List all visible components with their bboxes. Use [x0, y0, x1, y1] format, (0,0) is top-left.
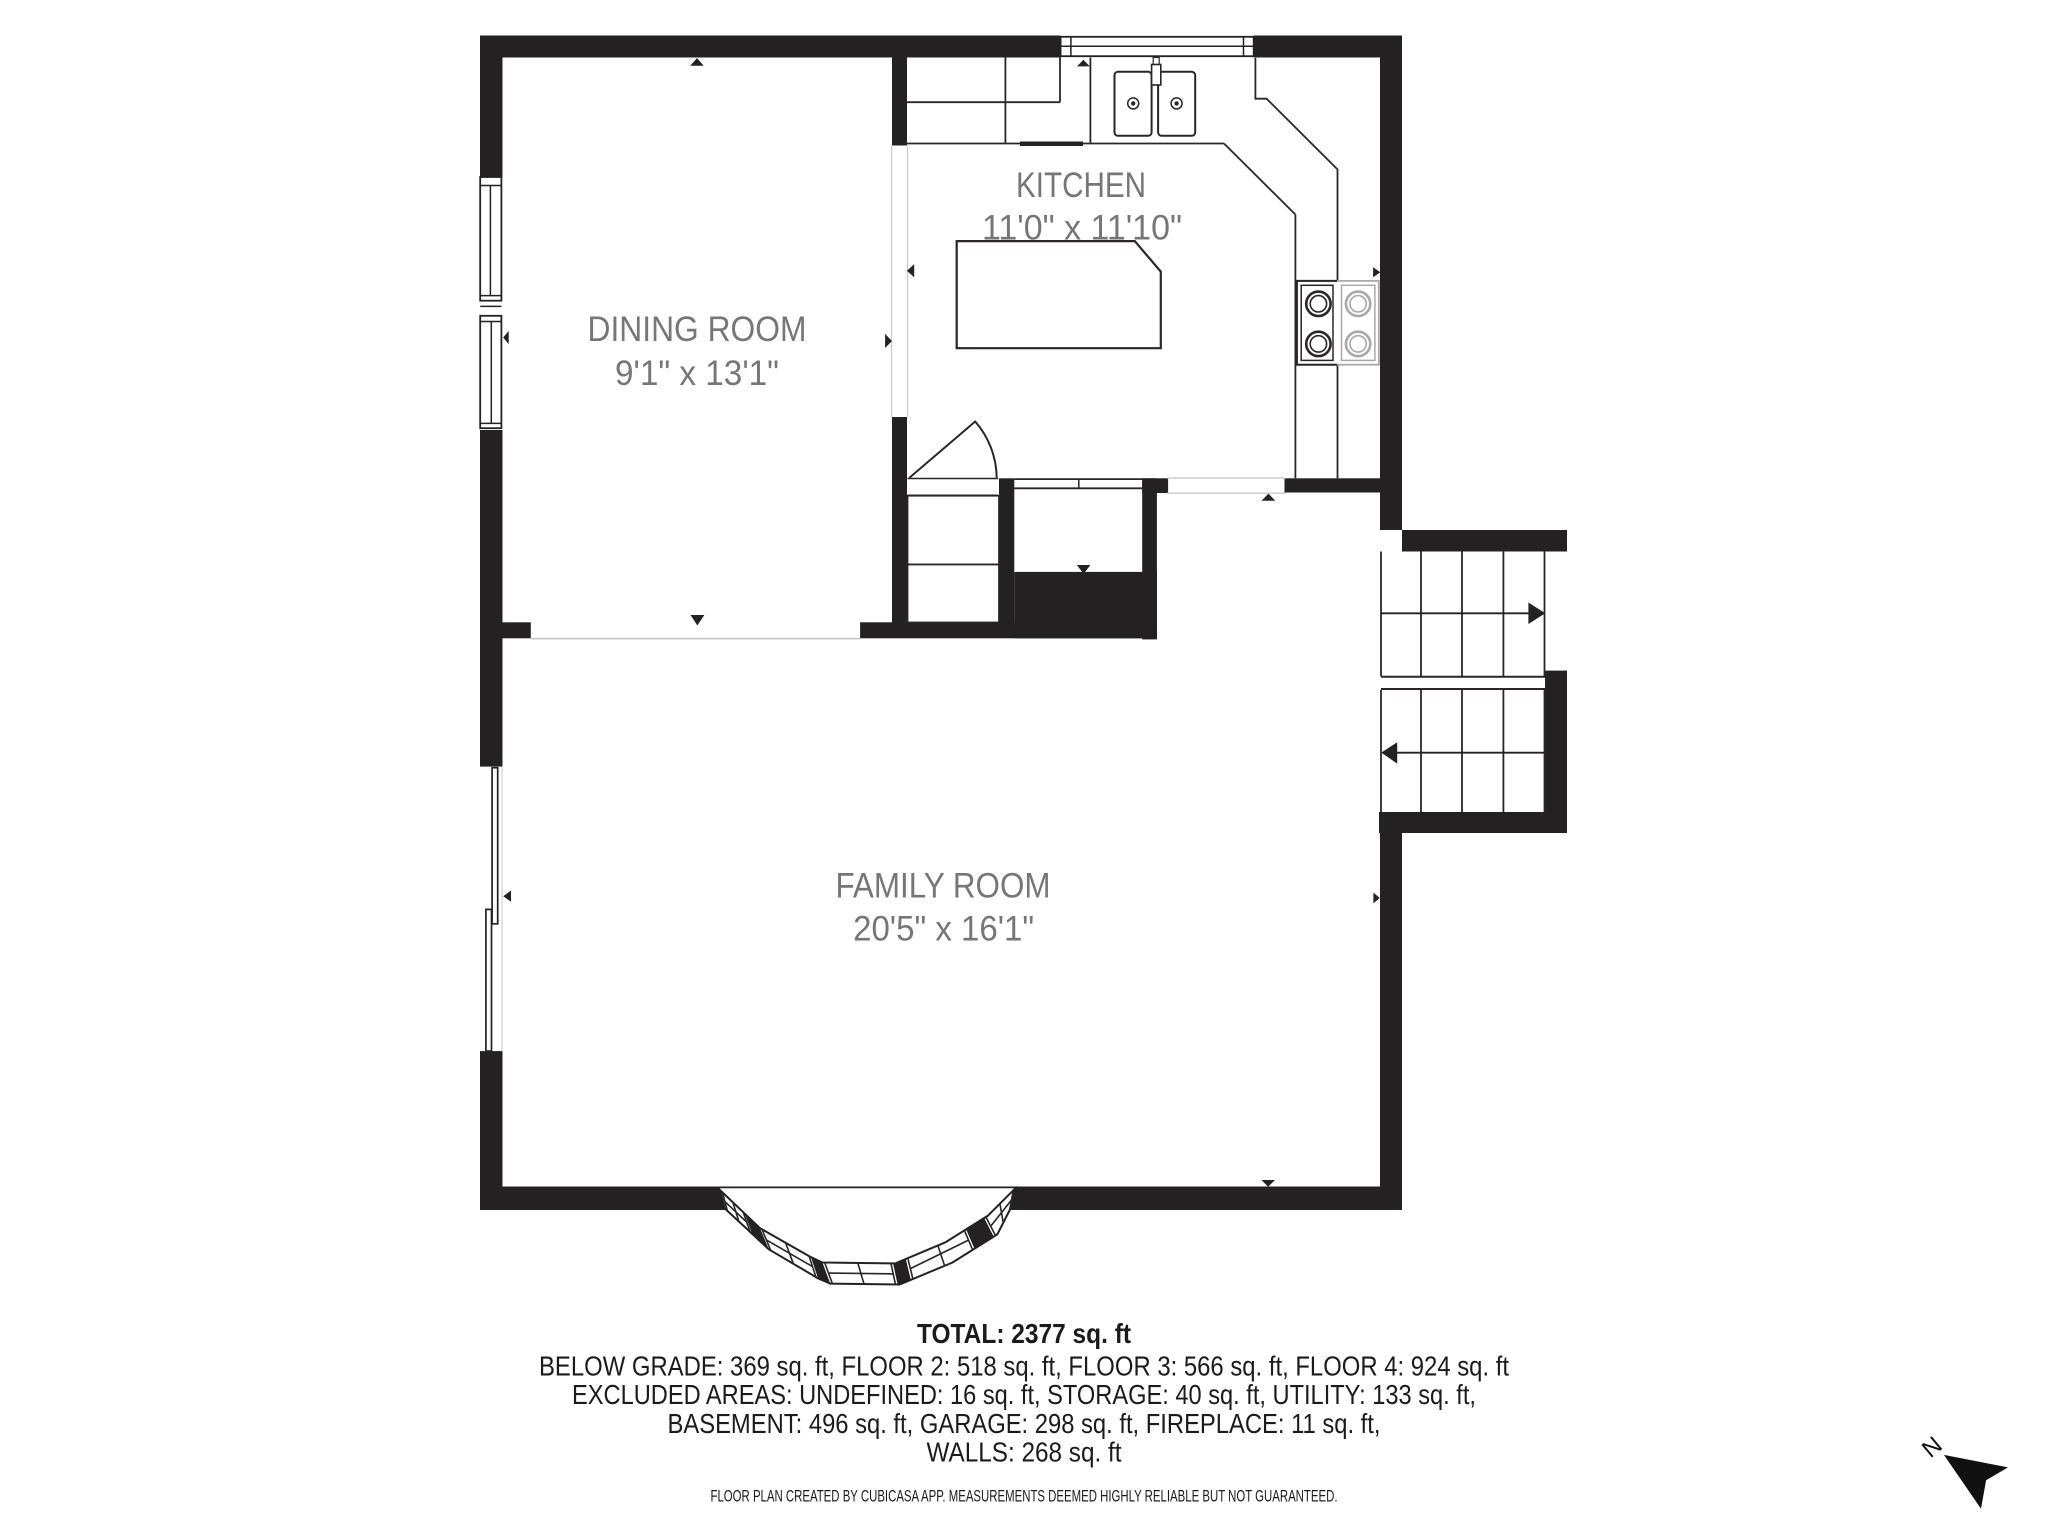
svg-text:BASEMENT: 496 sq. ft, GARAGE:: BASEMENT: 496 sq. ft, GARAGE: 298 sq. ft…: [668, 1408, 1381, 1439]
svg-text:FLOOR PLAN CREATED BY CUBICASA: FLOOR PLAN CREATED BY CUBICASA APP. MEAS…: [711, 1487, 1338, 1506]
svg-text:DINING ROOM: DINING ROOM: [588, 310, 807, 349]
svg-text:KITCHEN: KITCHEN: [1016, 166, 1146, 205]
svg-text:BELOW GRADE: 369 sq. ft, FLOOR: BELOW GRADE: 369 sq. ft, FLOOR 2: 518 sq…: [539, 1351, 1509, 1382]
svg-text:FAMILY ROOM: FAMILY ROOM: [836, 866, 1051, 905]
svg-text:EXCLUDED AREAS: UNDEFINED: 16: EXCLUDED AREAS: UNDEFINED: 16 sq. ft, ST…: [572, 1379, 1476, 1410]
svg-text:N: N: [1917, 1431, 1948, 1463]
svg-text:TOTAL: 2377 sq. ft: TOTAL: 2377 sq. ft: [917, 1318, 1131, 1349]
svg-text:WALLS: 268 sq. ft: WALLS: 268 sq. ft: [927, 1436, 1122, 1467]
svg-text:20'5" x 16'1": 20'5" x 16'1": [853, 910, 1034, 949]
svg-text:11'0" x 11'10": 11'0" x 11'10": [982, 209, 1182, 248]
svg-text:9'1" x 13'1": 9'1" x 13'1": [615, 354, 779, 393]
